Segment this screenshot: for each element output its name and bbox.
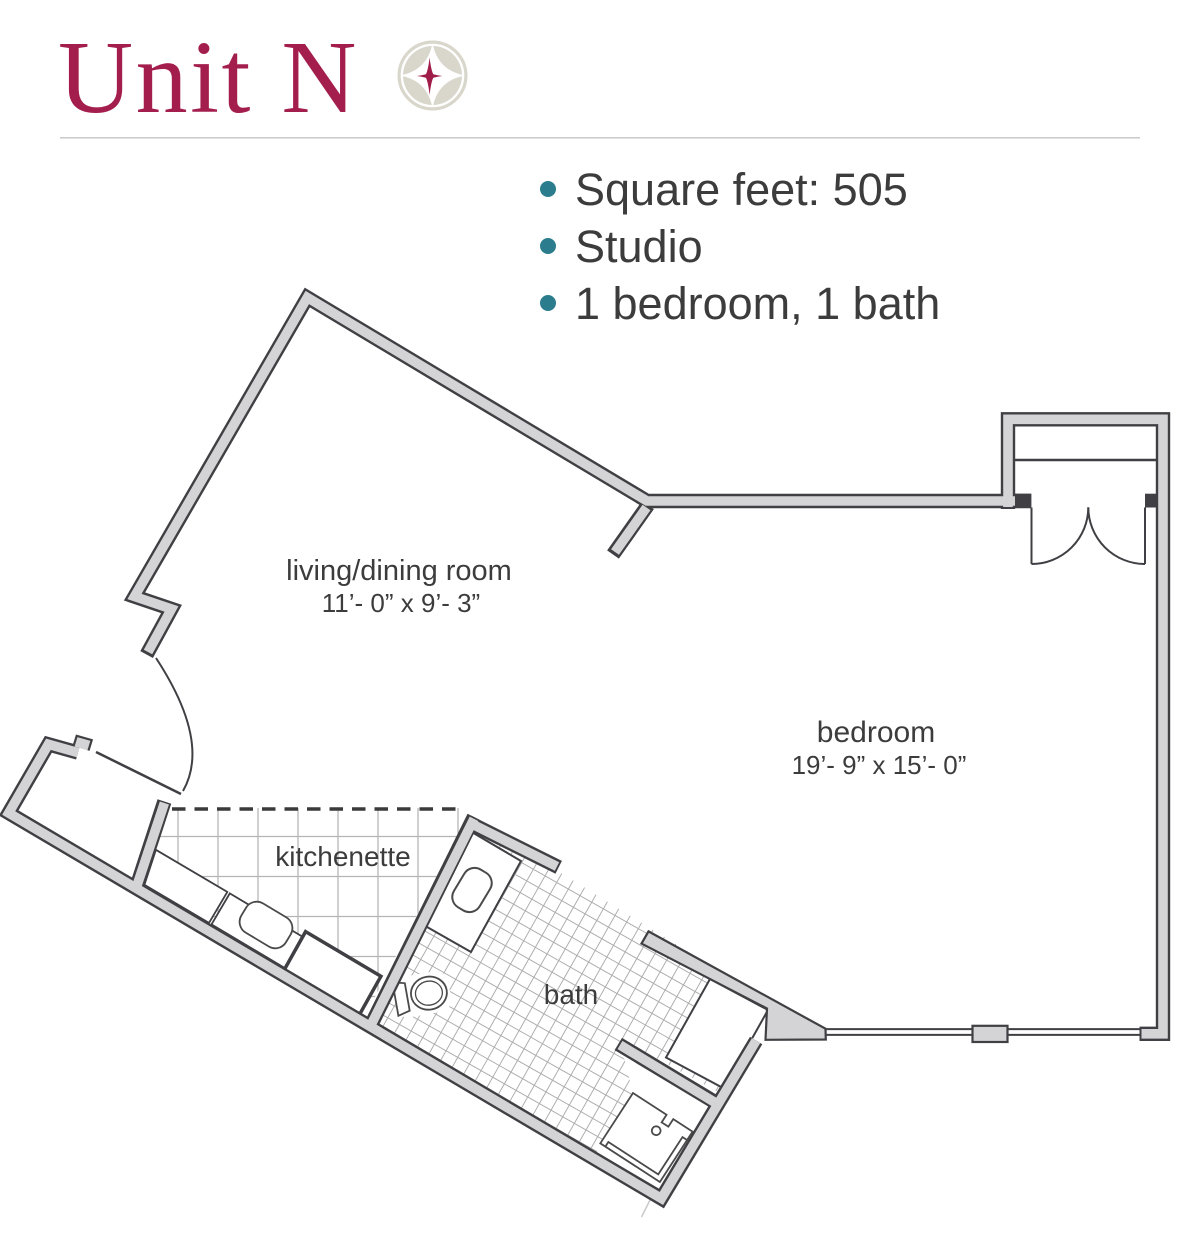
svg-text:bath: bath [544, 979, 599, 1010]
svg-text:Square feet: 505: Square feet: 505 [575, 164, 908, 215]
svg-text:1 bedroom, 1 bath: 1 bedroom, 1 bath [575, 278, 940, 329]
svg-text:Unit N: Unit N [58, 20, 359, 135]
svg-text:living/dining room: living/dining room [286, 555, 512, 587]
svg-text:kitchenette: kitchenette [275, 841, 410, 872]
svg-text:bedroom: bedroom [817, 716, 935, 749]
svg-text:19’- 9” x 15’- 0”: 19’- 9” x 15’- 0” [792, 750, 967, 780]
svg-text:11’- 0” x 9’- 3”: 11’- 0” x 9’- 3” [322, 588, 480, 618]
svg-text:Studio: Studio [575, 221, 703, 272]
